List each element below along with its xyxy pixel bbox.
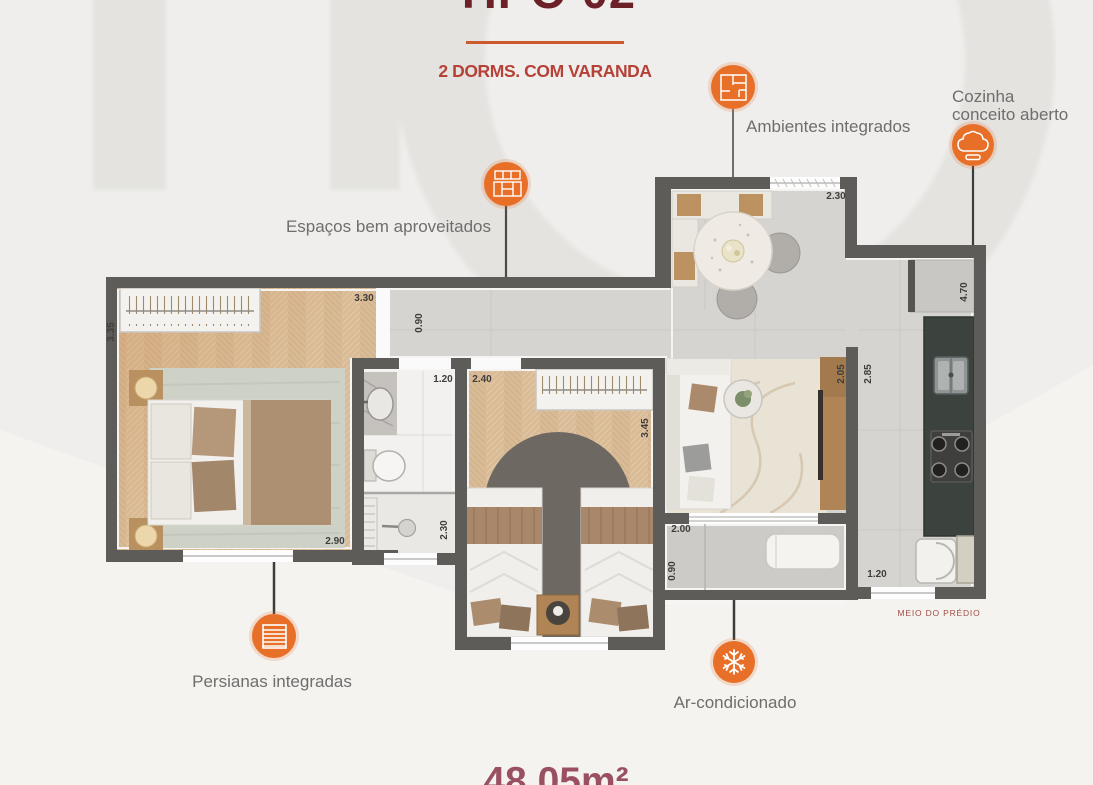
svg-text:0.90: 0.90 [414, 313, 425, 333]
svg-text:2 DORMS. COM VARANDA: 2 DORMS. COM VARANDA [438, 61, 652, 81]
svg-text:2.00: 2.00 [671, 524, 691, 535]
svg-text:Cozinha: Cozinha [952, 87, 1015, 106]
svg-text:2.90: 2.90 [325, 536, 345, 547]
svg-text:4.70: 4.70 [959, 282, 970, 302]
svg-text:Ambientes integrados: Ambientes integrados [746, 117, 910, 136]
svg-text:2.05: 2.05 [836, 364, 847, 384]
svg-text:1.20: 1.20 [433, 374, 453, 385]
svg-text:3.30: 3.30 [354, 293, 374, 304]
svg-text:2.30: 2.30 [826, 191, 846, 202]
svg-text:Persianas integradas: Persianas integradas [192, 672, 352, 691]
svg-text:1.20: 1.20 [867, 569, 887, 580]
svg-text:TIPO 02: TIPO 02 [454, 0, 636, 18]
svg-text:2.40: 2.40 [472, 374, 492, 385]
svg-text:48,05m²: 48,05m² [483, 760, 628, 785]
svg-text:3.45: 3.45 [640, 418, 651, 438]
svg-text:MEIO DO PRÉDIO: MEIO DO PRÉDIO [898, 608, 981, 618]
svg-text:2.30: 2.30 [439, 520, 450, 540]
svg-text:Espaços bem aproveitados: Espaços bem aproveitados [286, 217, 491, 236]
svg-text:conceito aberto: conceito aberto [952, 105, 1068, 124]
svg-text:2.85: 2.85 [863, 364, 874, 384]
svg-text:0.90: 0.90 [667, 561, 678, 581]
svg-text:3.35: 3.35 [106, 322, 117, 342]
svg-text:Ar-condicionado: Ar-condicionado [674, 693, 797, 712]
